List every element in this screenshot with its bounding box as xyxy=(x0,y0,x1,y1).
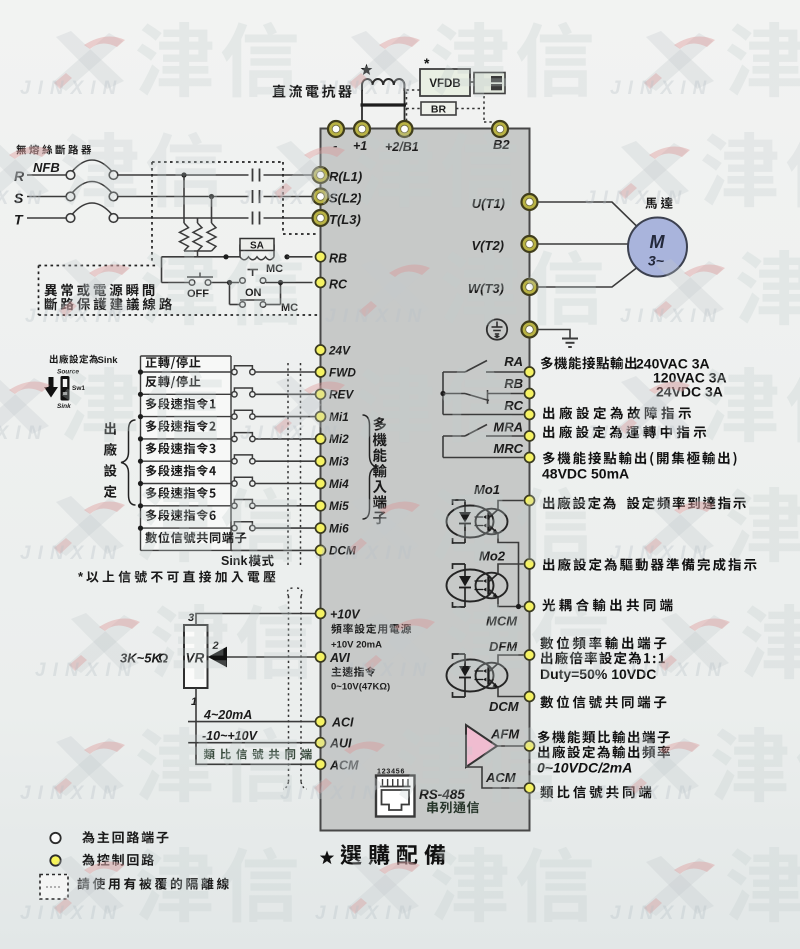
svg-text:T(L3): T(L3) xyxy=(329,212,361,227)
svg-text:RB: RB xyxy=(329,252,347,266)
svg-text:FWD: FWD xyxy=(329,365,356,379)
svg-text:4~20mA: 4~20mA xyxy=(203,708,252,722)
svg-text:RA: RA xyxy=(504,354,523,369)
svg-text:+10V 20mA: +10V 20mA xyxy=(331,640,382,651)
svg-text:Sink: Sink xyxy=(57,403,71,410)
svg-text:Mi4: Mi4 xyxy=(329,477,349,491)
svg-text:NFB: NFB xyxy=(33,160,60,175)
svg-text:BR: BR xyxy=(431,104,447,116)
svg-text:SA: SA xyxy=(250,241,264,252)
svg-text:Mi5: Mi5 xyxy=(329,499,349,513)
svg-text:ACI: ACI xyxy=(331,716,354,730)
svg-text:T: T xyxy=(14,212,24,228)
svg-text:Mi3: Mi3 xyxy=(329,455,349,469)
svg-text:24V: 24V xyxy=(328,344,351,358)
svg-text:M: M xyxy=(650,232,666,252)
svg-text:48VDC 50mA: 48VDC 50mA xyxy=(542,466,629,482)
svg-text:0~10V(47KΩ): 0~10V(47KΩ) xyxy=(331,682,390,693)
svg-text:Mi6: Mi6 xyxy=(329,521,349,535)
svg-text:MRC: MRC xyxy=(493,441,523,456)
svg-text:Sw1: Sw1 xyxy=(72,385,85,392)
svg-text:RC: RC xyxy=(329,278,348,292)
svg-text:DCM: DCM xyxy=(489,699,520,714)
svg-text:0~10VDC/2mA: 0~10VDC/2mA xyxy=(537,760,632,776)
svg-text:+10V: +10V xyxy=(330,608,361,622)
svg-text:Sink: Sink xyxy=(98,355,119,366)
